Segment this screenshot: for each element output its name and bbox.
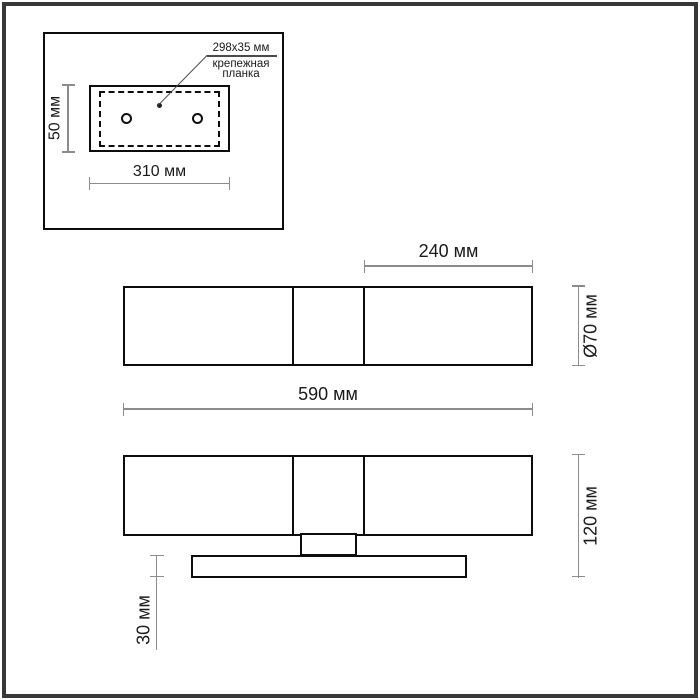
dim-120mm-tick-bottom [572, 576, 586, 577]
dim-50mm-tick-bottom [62, 151, 76, 152]
dim-240mm-label: 240 мм [364, 242, 533, 261]
dim-50mm-tick-top [62, 84, 76, 85]
dim-590mm-line [123, 408, 533, 409]
front-view-backplate-outline [191, 555, 467, 578]
top-view-divider-right [363, 286, 366, 366]
top-view-divider-left [292, 286, 295, 366]
mounting-hole-right-icon [192, 113, 203, 124]
front-view-divider-right [363, 455, 366, 536]
dim-50mm-label: 50 мм [47, 96, 64, 140]
dim-30mm-label: 30 мм [135, 595, 154, 645]
dim-diameter-line [578, 286, 579, 366]
callout-size-label: 298x35 мм [191, 42, 291, 54]
fixture-dimension-drawing: 298x35 мм крепежная планка 50 мм 310 мм … [0, 0, 700, 700]
front-view-stem-outline [300, 533, 357, 556]
dim-590mm-label: 590 мм [123, 385, 533, 404]
dim-240mm-tick-left [364, 260, 365, 273]
dim-120mm-label: 120 мм [582, 486, 601, 546]
dim-120mm-line [578, 455, 579, 578]
front-view-outline [123, 455, 533, 536]
dim-diameter-label: Ø70 мм [582, 294, 601, 358]
dim-30mm-tick-top [150, 555, 164, 556]
dim-590mm-tick-right [532, 403, 533, 416]
dim-590mm-tick-left [123, 403, 124, 416]
callout-underline [207, 55, 277, 56]
front-view-divider-left [292, 455, 295, 536]
dim-310mm-label: 310 мм [89, 163, 230, 180]
callout-name-line2: планка [191, 68, 291, 80]
top-view-outline [123, 286, 533, 366]
mounting-hole-left-icon [121, 113, 132, 124]
dim-240mm-line [364, 265, 533, 266]
dim-120mm-tick-top [572, 454, 586, 455]
dim-240mm-tick-right [532, 260, 533, 273]
dim-50mm-line [67, 85, 68, 152]
dim-diameter-tick-top [572, 285, 586, 286]
dim-diameter-tick-bottom [572, 365, 586, 366]
dim-30mm-line [156, 555, 157, 650]
dim-30mm-tick-bottom [150, 576, 164, 577]
dim-310mm-line [89, 183, 230, 184]
